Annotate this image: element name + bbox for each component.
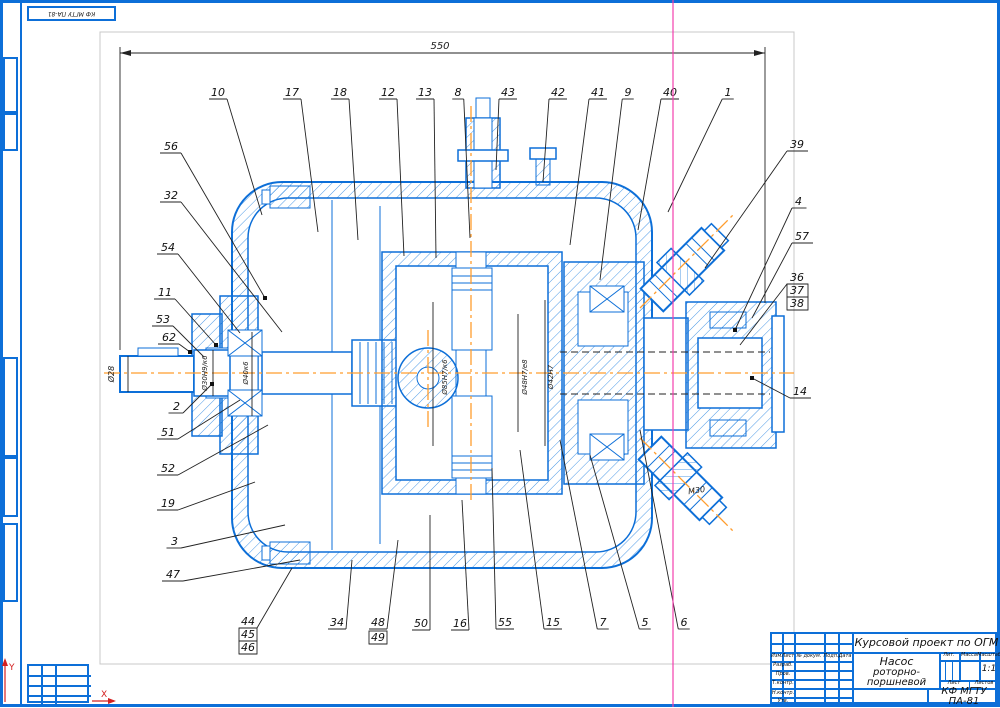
svg-text:3: 3 [171, 535, 178, 548]
tb-doc-name-2: роторно-поршневой [854, 670, 939, 686]
tb-scale-label: Масштаб [979, 653, 999, 660]
svg-text:15: 15 [546, 616, 560, 629]
svg-text:12: 12 [381, 86, 395, 99]
svg-text:46: 46 [241, 641, 255, 654]
dimension-text-Ø85Н7/к6[interactable]: Ø85Н7/к6 [441, 359, 449, 396]
cover-bolt-bottom [710, 420, 746, 436]
callout-38[interactable]: 38 [787, 297, 808, 310]
dimension-text-Ø48Н7/е8[interactable]: Ø48Н7/е8 [521, 359, 529, 396]
svg-text:42: 42 [551, 86, 565, 99]
svg-text:38: 38 [790, 297, 804, 310]
svg-text:44: 44 [241, 615, 255, 628]
callout-44[interactable]: 44 [239, 568, 292, 628]
svg-text:57: 57 [795, 230, 809, 243]
dimension-text-Ø28[interactable]: Ø28 [106, 366, 116, 383]
tb-role-utv: Утв. [772, 698, 794, 706]
svg-text:16: 16 [453, 617, 467, 630]
svg-text:47: 47 [166, 568, 180, 581]
axis-x-label: X [101, 690, 107, 700]
tb-col-list: Лист [782, 653, 794, 661]
svg-text:40: 40 [663, 86, 677, 99]
dimension-text-Ø42Н7[interactable]: Ø42Н7 [547, 364, 555, 390]
svg-text:1: 1 [725, 86, 732, 99]
dimension-text-550[interactable]: 550 [430, 41, 449, 52]
svg-text:8: 8 [455, 86, 462, 99]
shaft-key [138, 348, 178, 356]
tb-role-tkontr: Т.контр. [772, 680, 794, 688]
svg-text:14: 14 [793, 385, 807, 398]
svg-text:13: 13 [418, 86, 432, 99]
svg-text:2: 2 [173, 400, 180, 413]
origin-axes: Y X [2, 658, 116, 704]
piston-lower [452, 396, 492, 478]
callout-1[interactable]: 1 [668, 86, 734, 212]
tb-project-title: Курсовой проект по ОГМ [854, 634, 999, 652]
svg-text:48: 48 [371, 616, 385, 629]
svg-text:36: 36 [790, 271, 804, 284]
tb-col-izm: Изм. [772, 653, 782, 661]
tb-role-razrab: Разраб. [772, 662, 794, 670]
svg-text:50: 50 [414, 617, 428, 630]
svg-text:54: 54 [161, 241, 175, 254]
svg-text:19: 19 [161, 497, 175, 510]
tb-org-code: КФ МГТУ ПА-81 [929, 688, 999, 706]
svg-text:18: 18 [333, 86, 347, 99]
svg-text:6: 6 [681, 616, 688, 629]
svg-text:32: 32 [164, 189, 178, 202]
svg-text:52: 52 [161, 462, 175, 475]
svg-text:56: 56 [164, 140, 178, 153]
svg-text:53: 53 [156, 313, 170, 326]
callout-37[interactable]: 37 [787, 284, 808, 297]
tb-role-prov: Пров. [772, 671, 794, 679]
callout-46[interactable]: 46 [239, 641, 257, 654]
svg-text:62: 62 [162, 331, 176, 344]
svg-text:41: 41 [591, 86, 605, 99]
callout-49[interactable]: 49 [369, 631, 387, 644]
svg-text:55: 55 [498, 616, 512, 629]
svg-text:4: 4 [795, 195, 802, 208]
svg-text:11: 11 [158, 286, 172, 299]
tb-mass-label: Масса [959, 653, 979, 660]
svg-text:45: 45 [241, 628, 255, 641]
svg-text:49: 49 [371, 631, 385, 644]
tb-role-nkontr: Н.контр. [772, 690, 794, 698]
svg-text:37: 37 [790, 284, 804, 297]
tb-col-docnum: № докум. [794, 653, 824, 661]
callout-45[interactable]: 45 [239, 628, 257, 641]
svg-text:39: 39 [790, 138, 804, 151]
svg-text:10: 10 [211, 86, 225, 99]
svg-text:17: 17 [285, 86, 299, 99]
outlet-neck [644, 318, 688, 430]
dimension-text-Ø40к6[interactable]: Ø40к6 [242, 361, 250, 386]
piston-upper [452, 268, 492, 350]
tb-lit-label: Лит. [939, 653, 959, 660]
svg-text:43: 43 [501, 86, 515, 99]
svg-text:9: 9 [625, 86, 632, 99]
right-cover[interactable] [686, 302, 784, 448]
callout-34[interactable]: 34 [328, 560, 352, 629]
cad-drawing-canvas[interactable]: 1017181213843424194015632541153622515219… [0, 0, 1000, 707]
svg-text:51: 51 [161, 426, 175, 439]
svg-text:7: 7 [600, 616, 607, 629]
title-block: Изм. Лист № докум. Подп. Дата Разраб. Пр… [770, 632, 997, 704]
svg-text:34: 34 [330, 616, 344, 629]
axis-y-label: Y [8, 663, 15, 673]
dimension-text-Ø30Н9/к6[interactable]: Ø30Н9/к6 [201, 355, 209, 392]
svg-text:5: 5 [642, 616, 649, 629]
tb-col-data: Дата [838, 653, 852, 661]
cover-bolt-top [710, 312, 746, 328]
tb-scale-value: 1:1 [979, 661, 999, 679]
tb-col-podp: Подп. [824, 653, 838, 661]
